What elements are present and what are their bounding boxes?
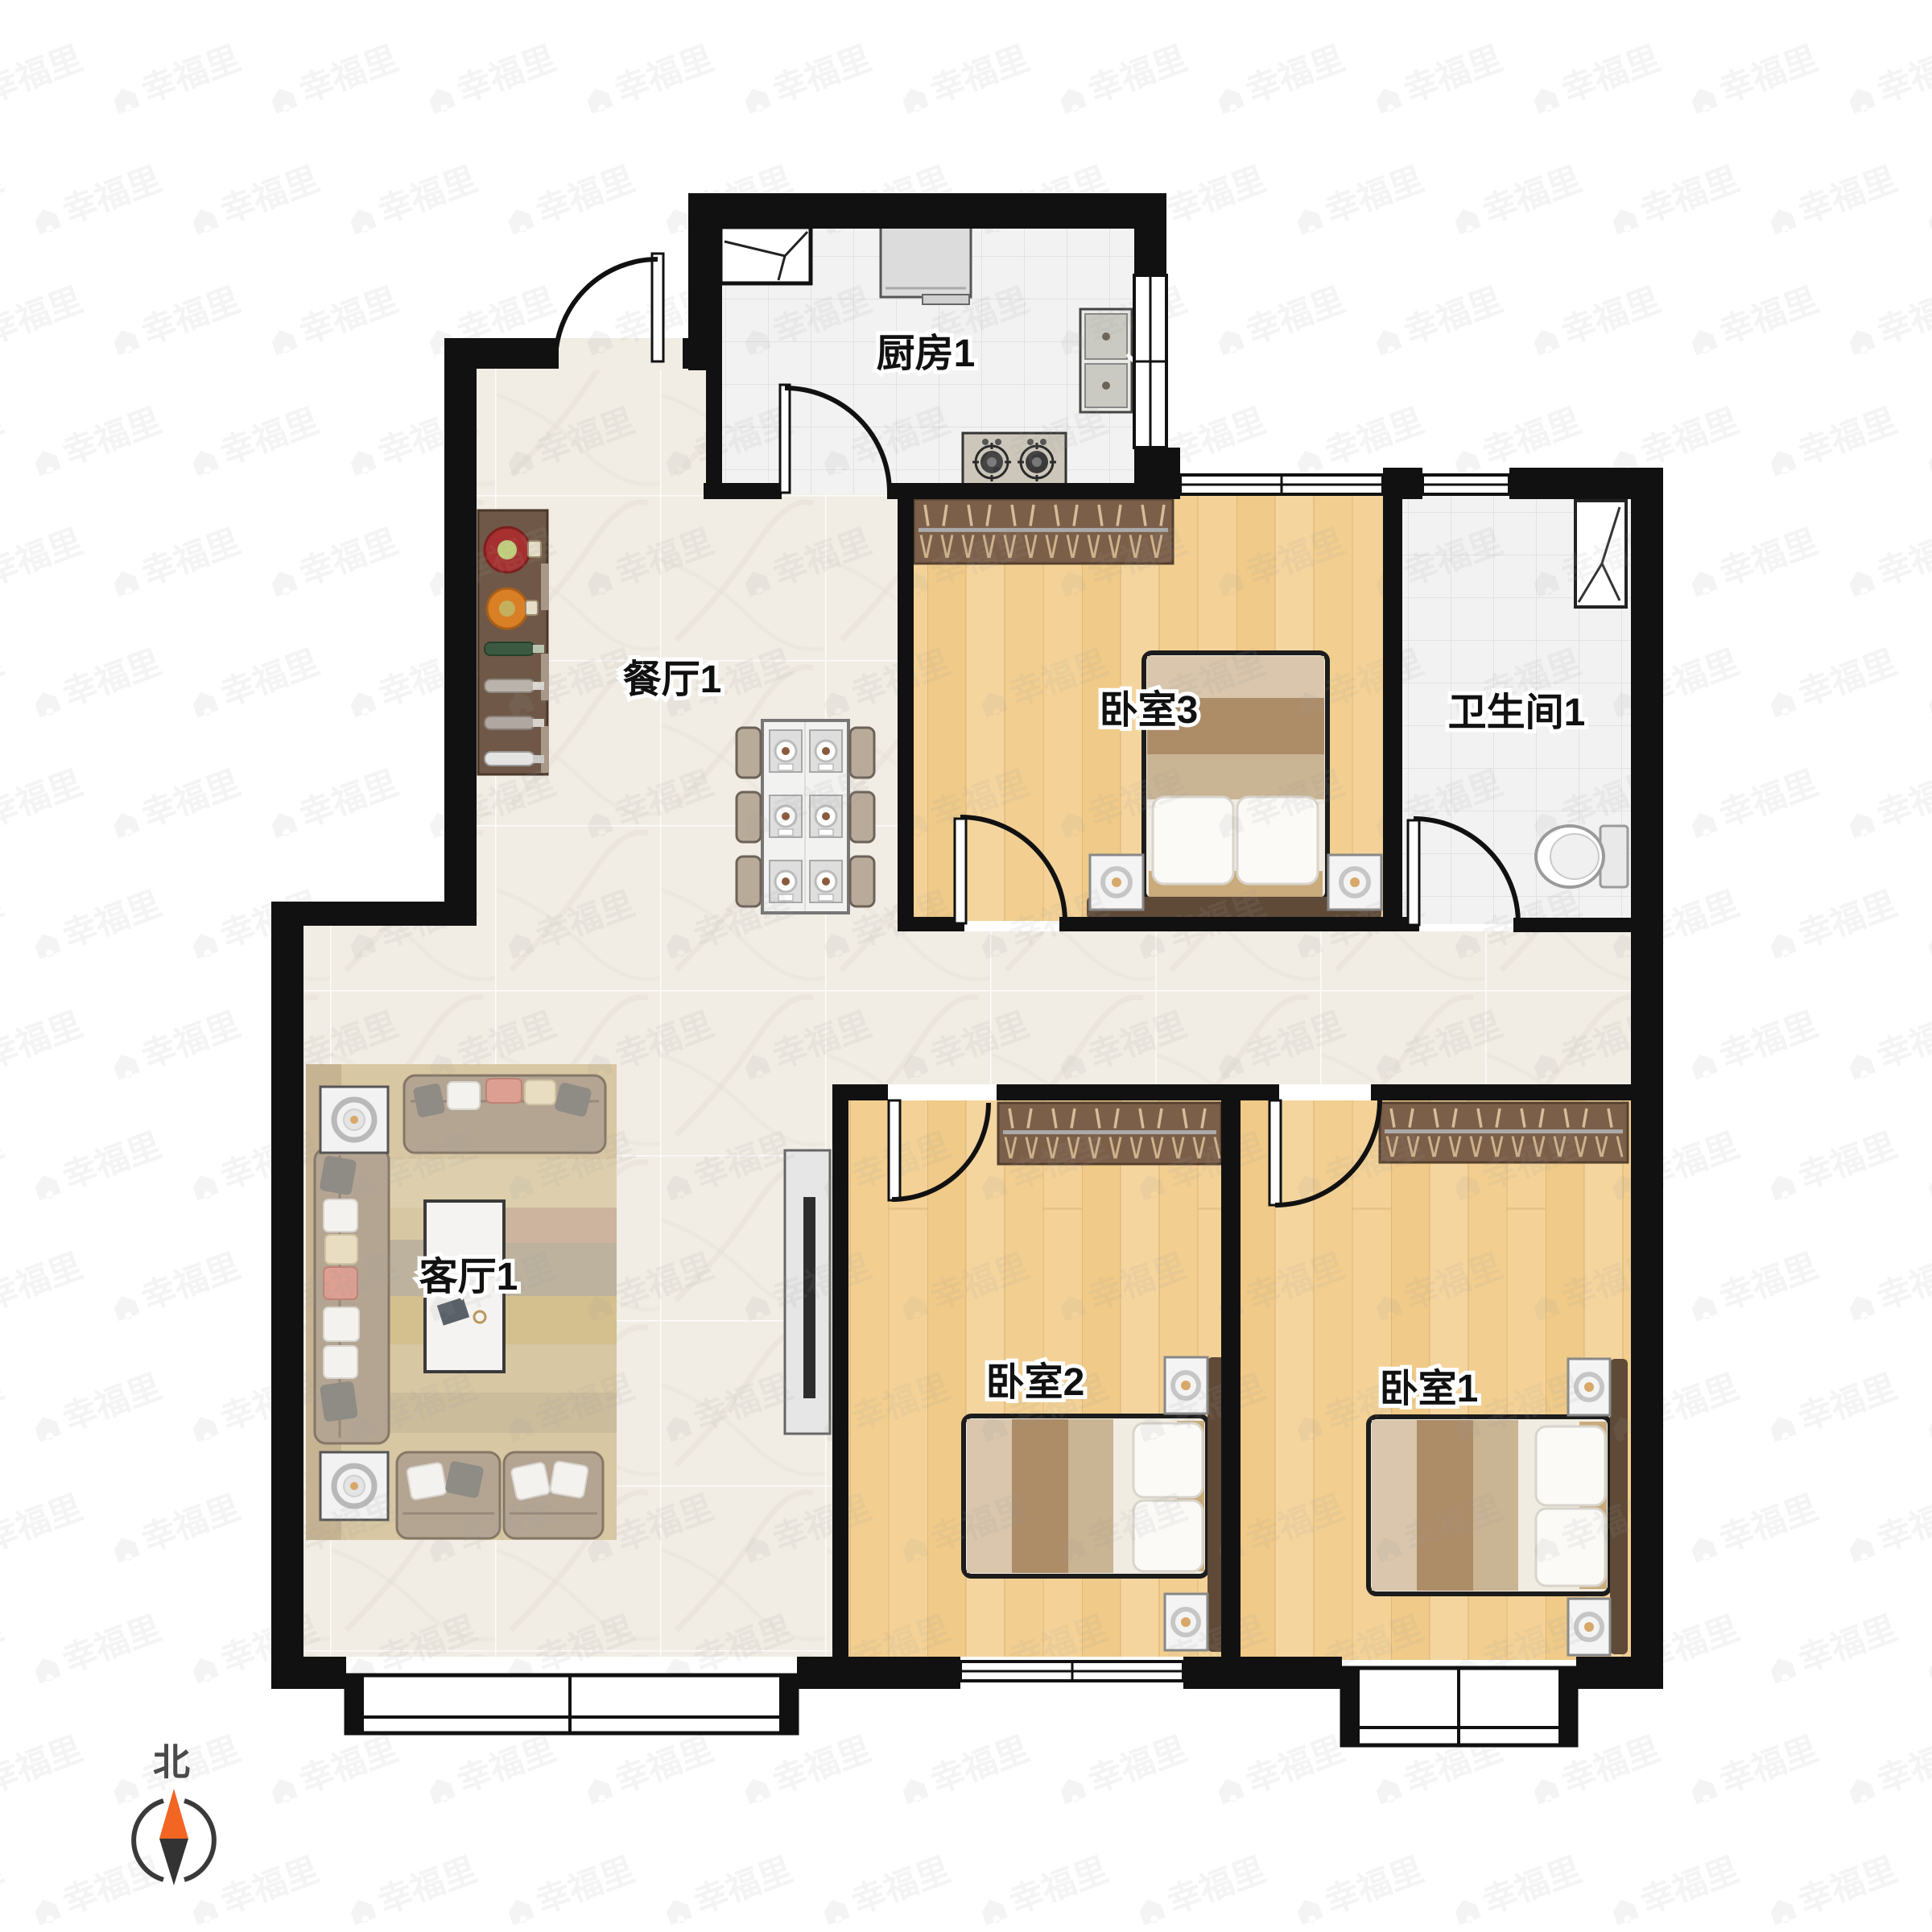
svg-text:厨房1: 厨房1 [877,332,976,375]
svg-text:客厅1: 客厅1 [419,1256,518,1298]
svg-text:卧室1: 卧室1 [1380,1368,1479,1410]
svg-text:卫生间1: 卫生间1 [1448,691,1586,734]
svg-text:北: 北 [153,1741,190,1783]
svg-text:卧室3: 卧室3 [1100,689,1199,732]
svg-text:餐厅1: 餐厅1 [623,658,722,701]
svg-text:卧室2: 卧室2 [986,1361,1085,1404]
